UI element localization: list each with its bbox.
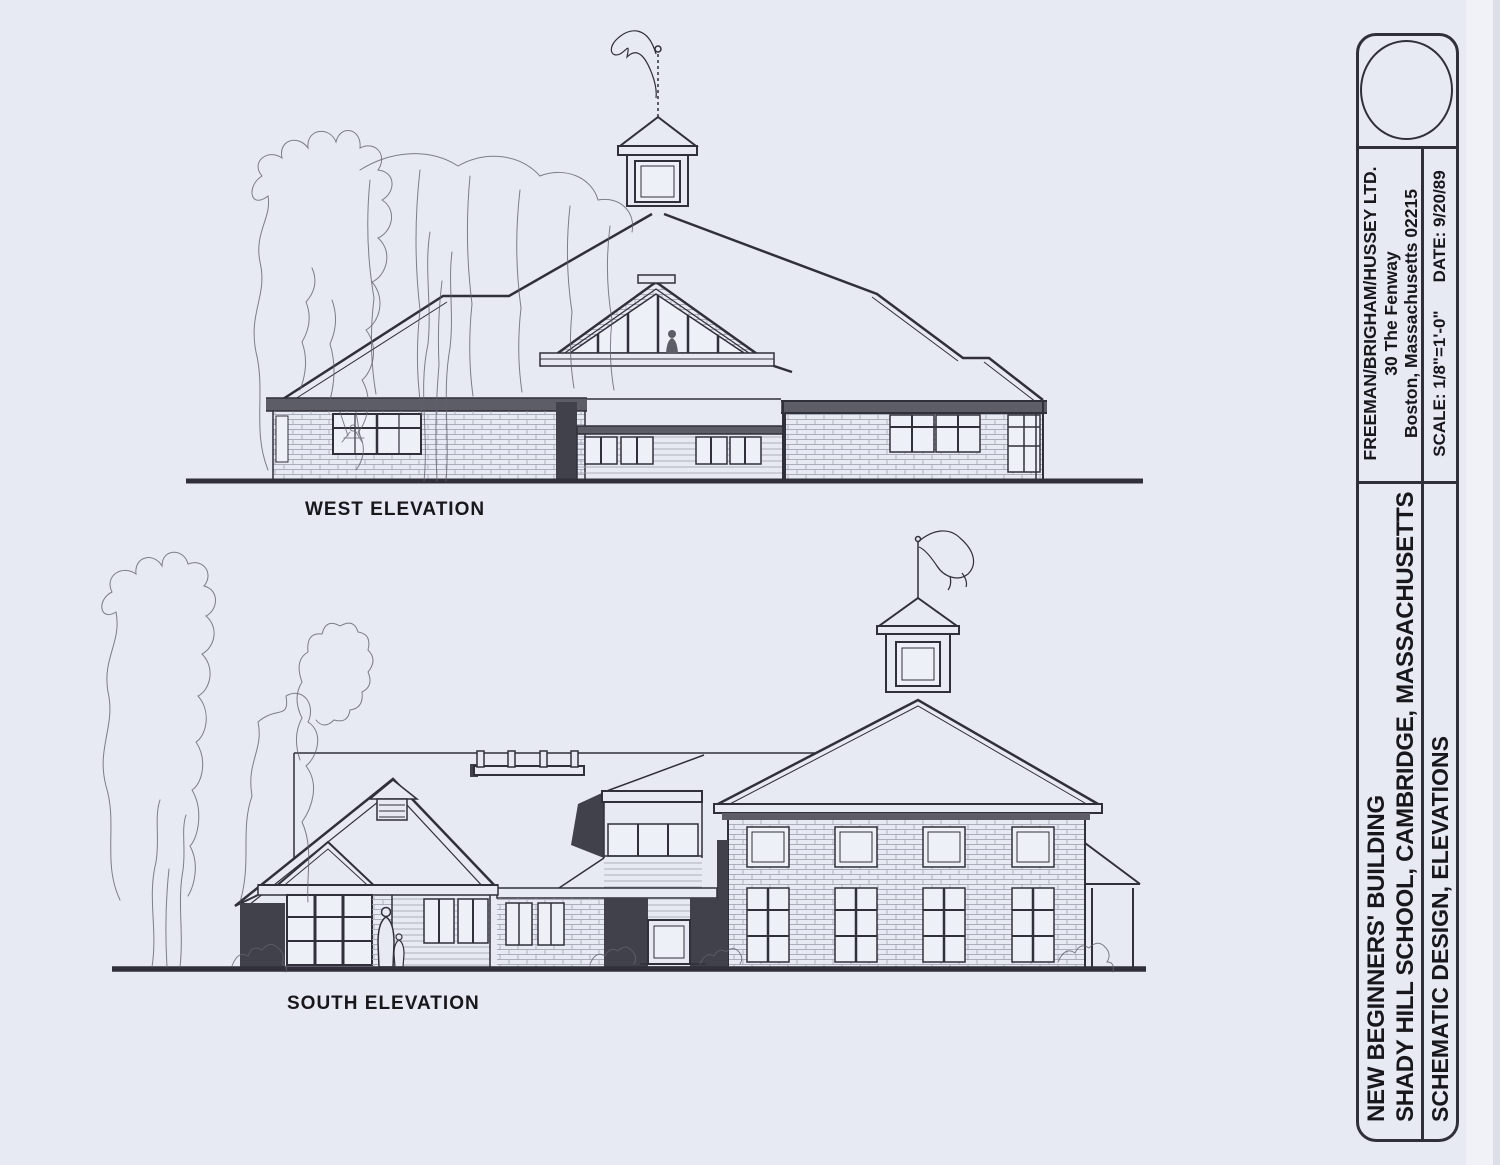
south-left-gable-wing [235,779,498,967]
west-elevation-drawing [186,31,1143,481]
sheet-title: SCHEMATIC DESIGN, ELEVATIONS [1424,484,1456,1136]
project-title-block: NEW BEGINNERS' BUILDING SHADY HILL SCHOO… [1359,484,1421,1136]
south-elevation-drawing [102,531,1146,972]
title-block: FREEMAN/BRIGHAM/HUSSEY LTD. 30 The Fenwa… [1356,33,1459,1142]
south-cupola [877,531,974,692]
south-elevation-label: SOUTH ELEVATION [287,993,480,1015]
scale-value: SCALE: 1/8"=1'-0" [1423,310,1456,456]
south-connector-wing [497,898,604,967]
elevations-drawing [0,0,1500,1165]
west-door-recess [556,402,577,481]
page-edge [1493,0,1500,1165]
drawing-sheet: WEST ELEVATION SOUTH ELEVATION FREEMAN/B… [0,0,1500,1165]
west-corner-window [276,416,288,462]
firm-address-line1: 30 The Fenway [1381,146,1402,481]
date-value: DATE: 9/20/89 [1423,170,1456,282]
project-name: NEW BEGINNERS' BUILDING [1362,484,1391,1122]
west-center-gable [540,260,792,372]
project-location: SHADY HILL SCHOOL, CAMBRIDGE, MASSACHUSE… [1391,484,1420,1122]
firm-address-line2: Boston, Massachusetts 02215 [1401,146,1422,481]
firm-logo-circle [1360,40,1453,140]
firm-name: FREEMAN/BRIGHAM/HUSSEY LTD. [1360,146,1381,481]
south-roof-railing [470,751,584,777]
south-porch [1085,843,1140,967]
west-right-fascia [781,401,1047,413]
west-left-fascia [266,398,587,411]
west-elevation-label: WEST ELEVATION [305,499,485,521]
firm-info-block: FREEMAN/BRIGHAM/HUSSEY LTD. 30 The Fenwa… [1359,146,1422,481]
page-margin [1466,0,1493,1165]
south-window-wall [287,895,372,965]
scale-date-block: SCALE: 1/8"=1'-0" DATE: 9/20/89 [1423,146,1456,481]
west-cupola [611,31,697,206]
